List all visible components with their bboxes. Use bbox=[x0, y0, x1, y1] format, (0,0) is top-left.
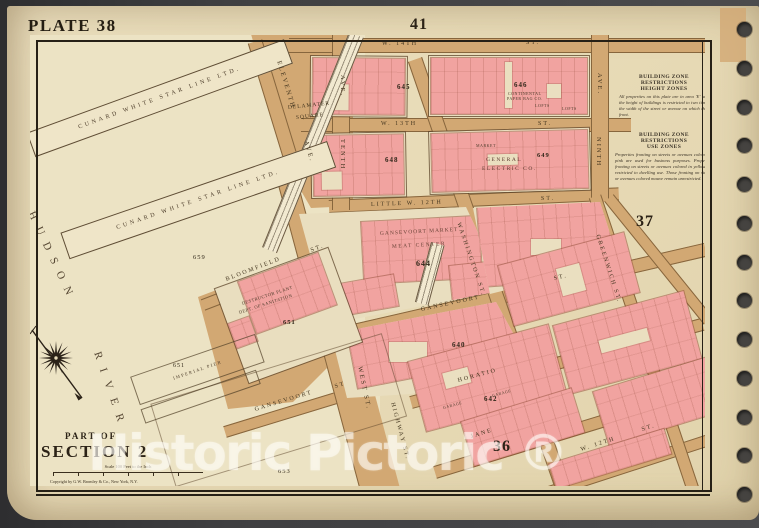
punch-hole bbox=[737, 371, 752, 386]
zone-note-height: BUILDING ZONE RESTRICTIONS HEIGHT ZONES … bbox=[619, 74, 705, 118]
block-number-649: 649 bbox=[537, 152, 550, 159]
block-number-645: 645 bbox=[397, 83, 411, 91]
label-electric-co: ELECTRIC CO. bbox=[482, 166, 537, 172]
street-ninth-ave bbox=[591, 35, 609, 202]
punch-hole bbox=[737, 487, 752, 502]
plate-title: PLATE 38 bbox=[28, 16, 117, 36]
atlas-photo: PLATE 38 41 bbox=[0, 0, 759, 528]
label-ninth: NINTH bbox=[595, 137, 602, 167]
zone-note-use-body: Properties fronting on streets or avenue… bbox=[615, 152, 705, 182]
zone-note-height-body: All properties on this plate are in area… bbox=[619, 94, 705, 118]
punch-hole bbox=[737, 293, 752, 308]
plate-border-bottom-double bbox=[36, 494, 710, 496]
punch-hole bbox=[737, 410, 752, 425]
zone-note-height-title1: BUILDING ZONE RESTRICTIONS bbox=[619, 74, 705, 86]
punch-hole bbox=[737, 100, 752, 115]
block-646-yard bbox=[547, 84, 561, 98]
label-w13th: W. 13TH bbox=[381, 121, 417, 127]
zone-note-use: BUILDING ZONE RESTRICTIONS USE ZONES Pro… bbox=[615, 132, 705, 182]
map-area: CUNARD WHITE STAR LINE LTD. CUNARD WHITE… bbox=[30, 35, 705, 486]
zone-note-height-title2: HEIGHT ZONES bbox=[619, 86, 705, 92]
punch-hole bbox=[737, 332, 752, 347]
punch-hole bbox=[737, 22, 752, 37]
punch-hole bbox=[737, 177, 752, 192]
label-little-w12th-st: ST. bbox=[541, 196, 555, 202]
block-number-644: 644 bbox=[416, 259, 431, 268]
block-number-646: 646 bbox=[514, 81, 528, 89]
punch-hole bbox=[737, 138, 752, 153]
label-w14th: W. 14TH bbox=[382, 41, 418, 47]
block-number-648: 648 bbox=[385, 156, 399, 164]
label-lofts-1: LOFTS bbox=[535, 103, 550, 108]
label-market-small: MARKET bbox=[476, 143, 496, 148]
adjacent-plate-top: 41 bbox=[410, 16, 428, 34]
label-tenth: TENTH bbox=[339, 139, 346, 170]
label-lofts-2: LOFTS bbox=[562, 106, 577, 111]
punch-hole bbox=[737, 61, 752, 76]
watermark-text: Historic Pictoric ® bbox=[88, 424, 566, 482]
label-tenth-ave-word: AVE. bbox=[339, 75, 346, 97]
binding-holes bbox=[737, 22, 752, 502]
plate-border-right-double bbox=[702, 40, 703, 490]
compass-rose-icon bbox=[30, 322, 97, 407]
label-ninth-ave-word: AVE. bbox=[596, 73, 603, 95]
block-number-651: 651 bbox=[283, 319, 296, 326]
block-horatio-jane-east-yard bbox=[598, 328, 650, 353]
block-646-alley bbox=[505, 62, 512, 108]
zone-note-use-title2: USE ZONES bbox=[615, 144, 705, 150]
lot-number-659: 659 bbox=[193, 254, 206, 261]
zone-note-use-title1: BUILDING ZONE RESTRICTIONS bbox=[615, 132, 705, 144]
block-number-640: 640 bbox=[452, 341, 466, 349]
block-648-yard bbox=[322, 171, 342, 189]
punch-hole bbox=[737, 216, 752, 231]
punch-hole bbox=[737, 255, 752, 270]
label-w13th-st: ST. bbox=[538, 121, 552, 127]
punch-hole bbox=[737, 448, 752, 463]
lot-number-651-pier: 651 bbox=[173, 363, 185, 369]
label-general: GENERAL bbox=[486, 157, 522, 163]
label-paper-bag-co: PAPER BAG CO. bbox=[507, 96, 543, 101]
label-w14th-st: ST. bbox=[526, 40, 540, 46]
imperial-pier-label: IMPERIAL PIER bbox=[172, 359, 222, 380]
adjacent-plate-right: 37 bbox=[636, 213, 654, 231]
